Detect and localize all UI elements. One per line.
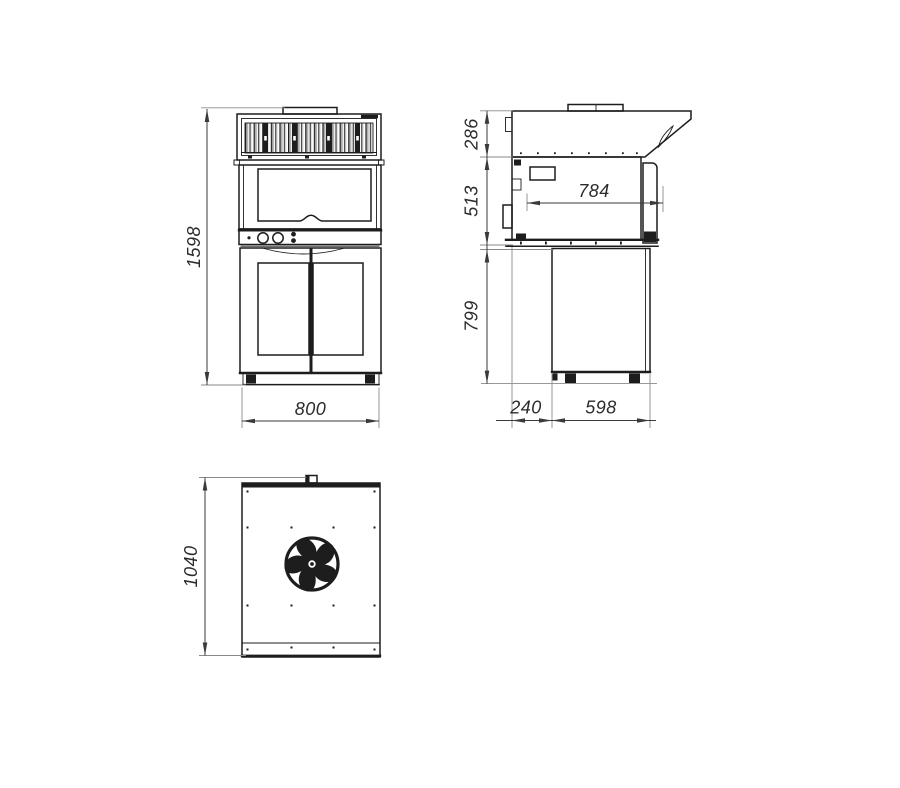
dim-label-hood-height: 286 [462, 118, 482, 151]
foot [629, 374, 640, 384]
dim-label-front-width: 800 [295, 399, 327, 419]
control-button [291, 232, 296, 237]
indicator-lamp [247, 236, 250, 239]
hood-vent [568, 105, 623, 112]
side-oven-body [503, 157, 658, 246]
technical-drawing-page: 1598 800 [0, 0, 900, 788]
side-hood [506, 105, 692, 158]
dim-label-front-height: 1598 [184, 226, 204, 268]
oven-window [258, 169, 371, 221]
dim-label-stand-height: 799 [462, 300, 482, 332]
dim-label-body-depth: 784 [578, 181, 610, 201]
foot [365, 375, 375, 384]
dimension-side-bottom: 240 598 [496, 247, 656, 428]
rating-plate [530, 167, 555, 180]
cabinet-door-right [313, 263, 363, 355]
rear-view: 1040 [181, 476, 380, 658]
control-knob [258, 233, 268, 243]
technical-drawing-canvas: 1598 800 [0, 0, 900, 788]
front-oven-section [239, 165, 381, 229]
foot [565, 374, 576, 384]
grill-badge [361, 115, 378, 118]
front-view: 1598 800 [184, 108, 384, 429]
dim-label-body-height: 513 [462, 185, 482, 217]
front-grill-section [237, 114, 381, 160]
dim-label-rear-height: 1040 [181, 545, 201, 587]
control-knob [273, 233, 283, 243]
side-stand [552, 249, 650, 384]
dimension-front-width: 800 [242, 388, 379, 429]
front-cabinet-section [240, 248, 381, 385]
dim-label-stand-depth: 598 [585, 398, 617, 418]
front-vent-cap [283, 108, 337, 115]
fan-icon [282, 536, 339, 594]
dimension-side-heights: 286 513 799 [462, 111, 658, 384]
cabinet-door-left [258, 263, 309, 355]
control-button [291, 238, 296, 243]
side-view: 286 513 799 784 240 598 [462, 105, 692, 429]
foot [246, 375, 256, 384]
front-control-panel [239, 229, 381, 246]
dim-label-stand-offset: 240 [509, 398, 542, 418]
hood-rivets [520, 152, 638, 154]
